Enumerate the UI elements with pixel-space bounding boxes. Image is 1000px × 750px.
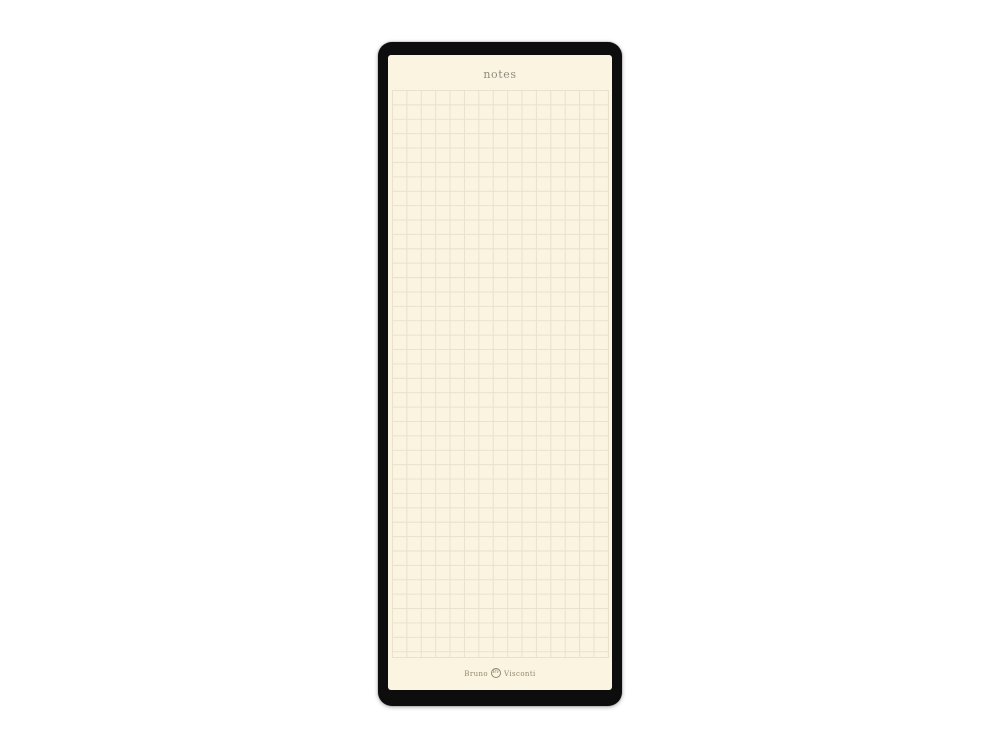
notepad-page: notes Bruno BV Visconti (388, 55, 612, 690)
bv-monogram-icon: BV (491, 668, 501, 678)
page-title: notes (483, 64, 516, 81)
grid-paper (392, 90, 609, 658)
brand-name-first: Bruno (464, 670, 488, 678)
brand-name-last: Visconti (504, 670, 536, 678)
notebook-cover: notes Bruno BV Visconti (378, 42, 622, 706)
page-header: notes (388, 55, 612, 90)
brand-logo: Bruno BV Visconti (388, 658, 612, 690)
bv-monogram-letters: BV (492, 670, 499, 675)
product-photo-background: notes Bruno BV Visconti (0, 0, 1000, 750)
